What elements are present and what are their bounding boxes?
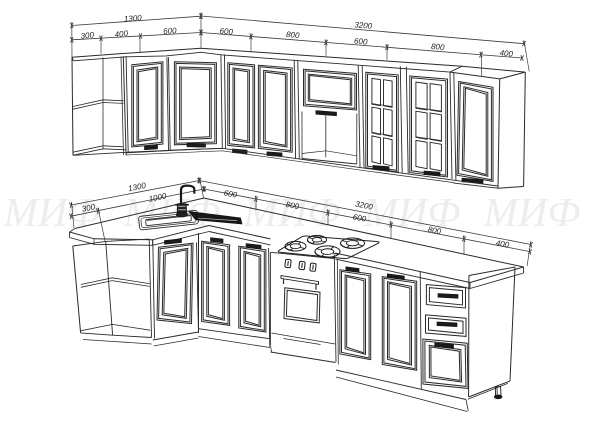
- svg-text:600: 600: [354, 36, 369, 46]
- svg-text:МИФ: МИФ: [483, 189, 581, 235]
- svg-text:400: 400: [114, 29, 129, 39]
- svg-text:400: 400: [499, 48, 514, 58]
- svg-text:800: 800: [286, 30, 301, 40]
- svg-text:1300: 1300: [124, 13, 143, 23]
- svg-text:600: 600: [219, 26, 234, 36]
- svg-text:600: 600: [163, 26, 178, 36]
- svg-text:300: 300: [80, 30, 95, 40]
- svg-text:800: 800: [431, 42, 446, 52]
- svg-text:3200: 3200: [354, 20, 373, 31]
